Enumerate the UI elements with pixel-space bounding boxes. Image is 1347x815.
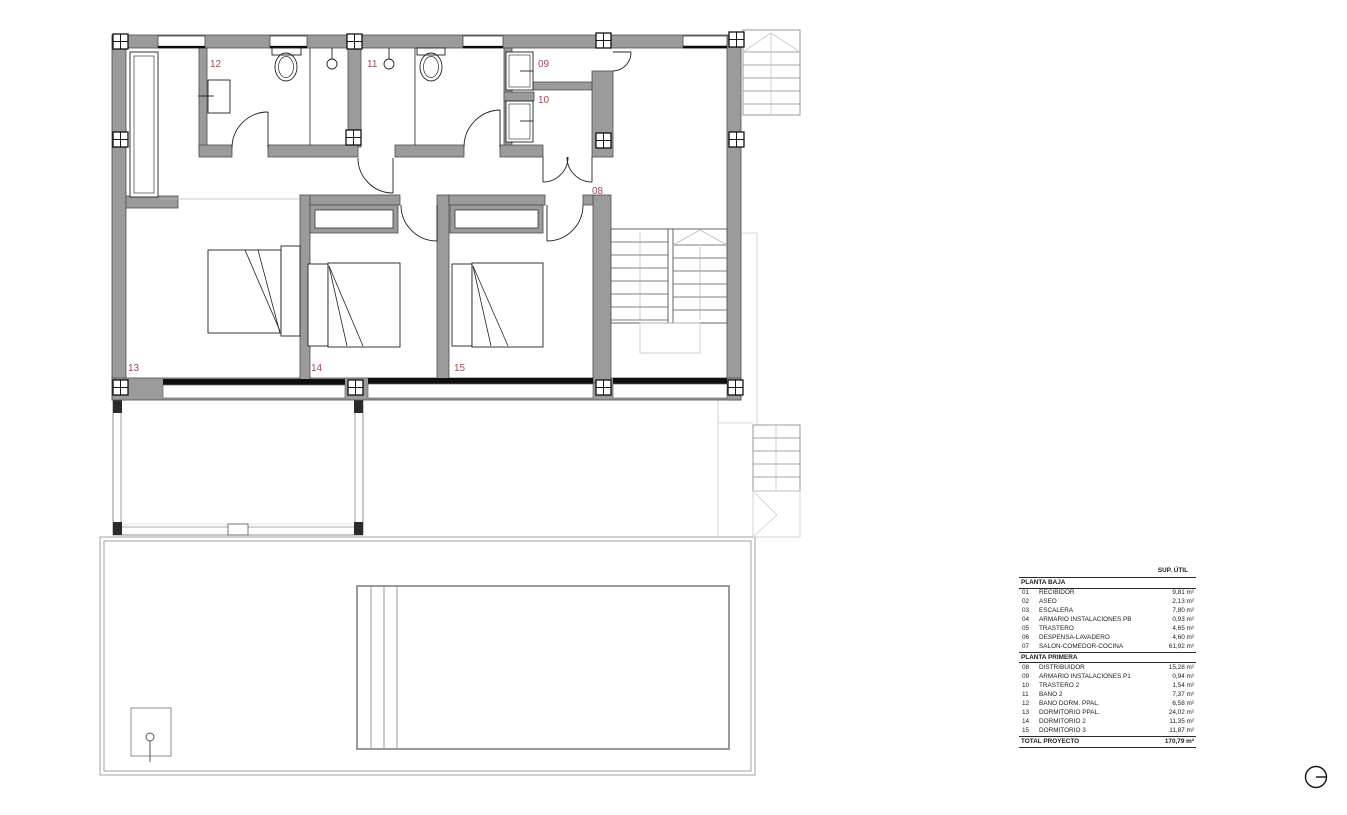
room-area: 1,54 m² [1172, 682, 1196, 690]
room-name: TRASTERO 2 [1039, 682, 1172, 690]
room-number: 12 [1019, 700, 1039, 708]
table-total-row: TOTAL PROYECTO 170,79 m² [1019, 736, 1196, 748]
room-number: 02 [1019, 598, 1039, 606]
room-number: 08 [1019, 664, 1039, 672]
room-area: 15,28 m² [1169, 664, 1196, 672]
north-indicator-icon [1303, 763, 1331, 791]
room-area: 11,35 m² [1169, 718, 1196, 726]
table-row: 10TRASTERO 21,54 m² [1019, 682, 1196, 691]
table-row: 11BAÑO 27,37 m² [1019, 691, 1196, 700]
bedroom-15-furniture [450, 205, 543, 347]
room-number: 10 [1019, 682, 1039, 690]
outdoor-shower-pad [131, 708, 171, 762]
door-bedroom-14 [401, 205, 437, 241]
room-label-13: 13 [128, 363, 140, 374]
table-sections: PLANTA BAJA01RECIBIDOR9,81 m²02ASEO2,13 … [1019, 577, 1196, 736]
total-label: TOTAL PROYECTO [1019, 738, 1165, 746]
double-door-trastero [543, 157, 592, 182]
exterior-stair-top-right [743, 30, 800, 115]
room-area: 7,80 m² [1172, 607, 1196, 615]
room-area: 2,13 m² [1172, 598, 1196, 606]
room-area: 24,02 m² [1169, 709, 1196, 717]
room-area: 0,94 m² [1172, 673, 1196, 681]
room-number: 07 [1019, 643, 1039, 651]
swimming-pool [357, 586, 729, 749]
closet-13 [130, 52, 158, 197]
table-row: 02ASEO2,13 m² [1019, 598, 1196, 607]
room-number: 01 [1019, 589, 1039, 597]
table-row: 04ARMARIO INSTALACIONES PB0,93 m² [1019, 616, 1196, 625]
room-number: 11 [1019, 691, 1039, 699]
table-row: 09ARMARIO INSTALACIONES P10,94 m² [1019, 673, 1196, 682]
table-row: 08DISTRIBUIDOR15,28 m² [1019, 663, 1196, 672]
room-area: 0,93 m² [1172, 616, 1196, 624]
room-name: DORMITORIO 3 [1039, 727, 1169, 735]
room-label-09: 09 [538, 59, 550, 70]
room-name: ARMARIO INSTALACIONES PB [1039, 616, 1172, 624]
bedroom-14-furniture [308, 205, 400, 347]
door-distributor [358, 158, 393, 193]
door-bath-12 [232, 112, 268, 148]
room-area: 7,37 m² [1172, 691, 1196, 699]
table-section-title: PLANTA PRIMERA [1019, 652, 1196, 663]
room-name: TRASTERO [1039, 625, 1172, 633]
room-label-11: 11 [367, 59, 378, 70]
room-label-14: 14 [311, 363, 323, 374]
table-row: 01RECIBIDOR9,81 m² [1019, 589, 1196, 598]
table-row: 03ESCALERA7,80 m² [1019, 607, 1196, 616]
area-table: SUP. ÚTIL PLANTA BAJA01RECIBIDOR9,81 m²0… [1019, 566, 1196, 748]
bathroom-11-fixtures [384, 48, 445, 145]
porch-step [228, 524, 248, 535]
room-name: DORMITORIO 2 [1039, 718, 1169, 726]
room-area: 4,60 m² [1172, 634, 1196, 642]
table-section-title: PLANTA BAJA [1019, 577, 1196, 588]
door-bath-11 [464, 110, 500, 147]
room-name: DORMITORIO PPAL. [1039, 709, 1169, 717]
room-area: 11,87 m² [1169, 727, 1196, 735]
room-name: BAÑO DORM. PPAL. [1039, 700, 1172, 708]
room-name: RECIBIDOR [1039, 589, 1172, 597]
room-number: 13 [1019, 709, 1039, 717]
porch [113, 400, 363, 535]
room-area: 61,92 m² [1169, 643, 1196, 651]
building-walls [112, 35, 741, 400]
room-label-15: 15 [454, 363, 466, 374]
table-row: 12BAÑO DORM. PPAL.6,58 m² [1019, 700, 1196, 709]
bedroom-13-furniture [208, 246, 300, 336]
table-row: 13DORMITORIO PPAL.24,02 m² [1019, 709, 1196, 718]
porch-posts [113, 400, 363, 535]
table-header-sup-util: SUP. ÚTIL [1019, 566, 1196, 577]
room-name: DISTRIBUIDOR [1039, 664, 1169, 672]
room-number: 06 [1019, 634, 1039, 642]
table-row: 06DESPENSA-LAVADERO4,60 m² [1019, 634, 1196, 643]
room-number: 15 [1019, 727, 1039, 735]
room-label-10: 10 [538, 95, 550, 106]
room-number: 05 [1019, 625, 1039, 633]
room-number: 03 [1019, 607, 1039, 615]
door-closet-09 [613, 52, 631, 71]
room-name: ARMARIO INSTALACIONES P1 [1039, 673, 1172, 681]
room-name: SALÓN-COMEDOR-COCINA [1039, 643, 1169, 651]
room-area: 4,65 m² [1172, 625, 1196, 633]
stair-landing-outline [640, 323, 700, 353]
room-name: ASEO [1039, 598, 1172, 606]
room-label-08: 08 [592, 186, 604, 197]
room-name: DESPENSA-LAVADERO [1039, 634, 1172, 642]
floor-plan-sheet: 12 11 09 10 08 13 14 15 SUP. ÚTIL PLANTA… [0, 0, 1347, 815]
floor-plan-drawing: 12 11 09 10 08 13 14 15 [0, 0, 840, 815]
room-number: 04 [1019, 616, 1039, 624]
total-value: 170,79 m² [1165, 738, 1196, 746]
room-name: ESCALERA [1039, 607, 1172, 615]
table-row: 15DORMITORIO 311,87 m² [1019, 727, 1196, 736]
room-label-12: 12 [210, 59, 222, 70]
room-number: 14 [1019, 718, 1039, 726]
table-row: 05TRASTERO4,65 m² [1019, 625, 1196, 634]
room-area: 9,81 m² [1172, 589, 1196, 597]
bottom-wall-glazing [163, 378, 727, 398]
table-row: 07SALÓN-COMEDOR-COCINA61,92 m² [1019, 643, 1196, 652]
room-number: 09 [1019, 673, 1039, 681]
table-row: 14DORMITORIO 211,35 m² [1019, 718, 1196, 727]
room-name: BAÑO 2 [1039, 691, 1172, 699]
room-area: 6,58 m² [1172, 700, 1196, 708]
door-bedroom-15 [547, 205, 583, 241]
interior-stair [611, 229, 727, 353]
